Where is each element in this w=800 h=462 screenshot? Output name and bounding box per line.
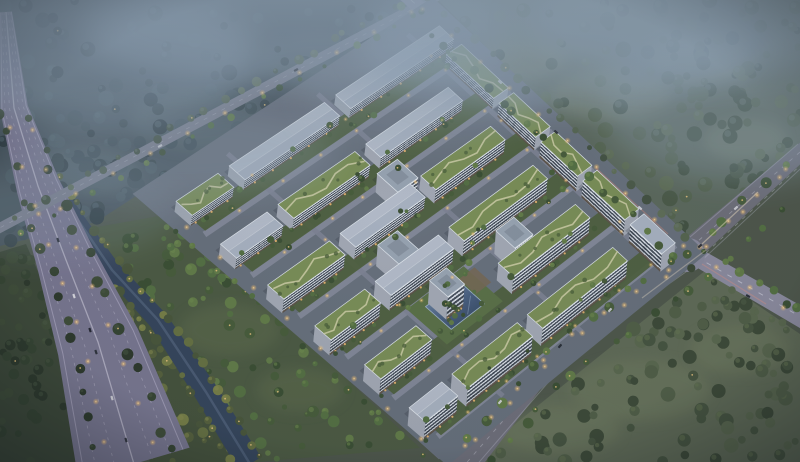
aerial-architectural-render <box>0 0 800 462</box>
vignette-overlay <box>0 0 800 462</box>
scene-canvas <box>0 0 800 462</box>
